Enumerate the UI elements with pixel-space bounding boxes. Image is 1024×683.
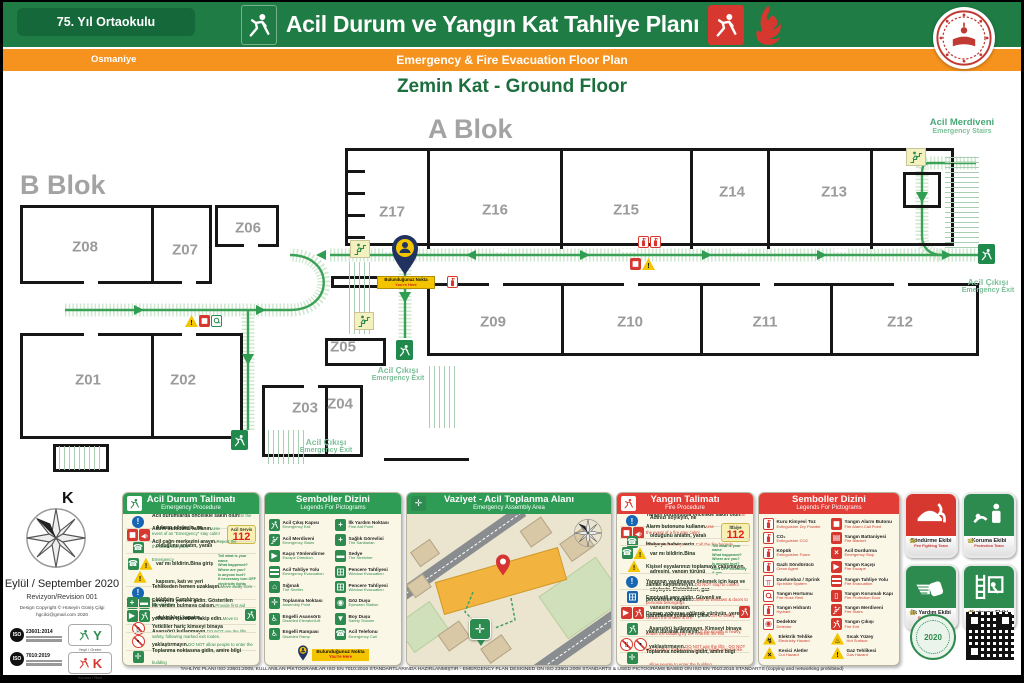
window-icon xyxy=(627,591,638,603)
legend-item: Yangın MerdiveniFire Stairs xyxy=(831,603,895,617)
sprinkler-icon: ╥ xyxy=(763,575,774,587)
wall xyxy=(151,208,154,281)
fire-exit-man-icon xyxy=(621,496,636,511)
team-badge-protection: ☎Koruma EkibiProtection Team xyxy=(962,492,1016,558)
you-are-here-label: Bulunduğunuz Nokta You're Here xyxy=(377,276,435,289)
legend-item: ╥Davlumbaz / SprinkSprinkler System xyxy=(763,574,827,588)
wall xyxy=(700,286,703,353)
stretcher-icon: ▬ xyxy=(335,550,346,562)
legend-text: Gaz TehlikesiGas Hazard xyxy=(847,648,877,658)
route-arrow-down-icon xyxy=(916,192,928,203)
route-arrow-right-icon xyxy=(702,250,712,260)
wall xyxy=(345,170,365,173)
legend-text: Pencere TahliyesiWindow Evacuation xyxy=(349,567,388,577)
iso-badge-2: ISO 7010:2019 xyxy=(10,652,62,666)
extinguisher-icon xyxy=(447,276,458,288)
stairs-hatch xyxy=(429,366,459,428)
fire-hose-icon xyxy=(763,590,774,602)
panel-legend-green: Semboller Dizini Legends For Pictograms … xyxy=(264,492,402,666)
route-arrow-down-icon xyxy=(242,354,254,365)
fire-hose-icon xyxy=(211,315,222,327)
legend-text: Yangın HortumuFire Hose Reel xyxy=(777,591,813,601)
legend-text: Toplanma NoktasıAssembly Point xyxy=(283,598,323,608)
subtitle-bar: Osmaniye Emergency & Fire Evacuation Flo… xyxy=(3,49,1021,71)
row-icons: ☎!! xyxy=(620,547,648,572)
protection-icon xyxy=(964,494,1014,536)
room-label-z13: Z13 xyxy=(821,184,847,201)
room-label-z11: Z11 xyxy=(752,314,777,331)
team-badge-helmet-flame: ☎Söndürme EkibiFire Fighting Team xyxy=(904,492,958,558)
legend-text: Yangın Alarm ButonuFire Alarm Call Point xyxy=(845,519,892,529)
info-icon: ! xyxy=(132,516,144,528)
ministry-logo xyxy=(933,7,995,69)
legend-text: Boy DuşuSafety Shower xyxy=(349,614,375,624)
fire-exit-icon xyxy=(633,607,644,619)
info-icon: ! xyxy=(626,576,638,588)
plan-date: Eylül / September 2020 xyxy=(4,578,120,590)
warning-icon: ! xyxy=(628,560,641,572)
legend-item: ▶Yangın KaçışıFire Escape xyxy=(831,560,895,574)
emergency-exit-icon xyxy=(396,340,413,360)
legend-item: Acil Çıkış KapısıEmergency Exit xyxy=(269,517,331,533)
room-label-z09: Z09 xyxy=(480,314,506,331)
green-key: Y xyxy=(68,624,112,646)
legend-text: İlk Yardım NoktasıFirst Aid Point xyxy=(349,520,389,530)
panel-legend-red: Semboller Dizini Legends For Pictograms … xyxy=(758,492,900,666)
procedure-row-10: ✛Toplanma noktasına gidin, amire bilgi v… xyxy=(620,652,750,663)
legend-text: SedyeThe Stretcher xyxy=(349,551,373,561)
sanitarian-icon: + xyxy=(335,534,346,546)
row-icons: ! xyxy=(620,576,644,588)
route-arrow-right-icon xyxy=(134,305,144,315)
room-label-z07: Z07 xyxy=(172,242,198,259)
legend-item: CO₂Extinguisher CO2 xyxy=(763,531,827,545)
legend-item: ✛Toplanma NoktasıAssembly Point xyxy=(269,595,331,611)
room-label-z12: Z12 xyxy=(887,314,913,331)
green-runner-icon xyxy=(78,629,90,641)
panel-fire-procedure: Yangın Talimatı Fire Procedure !Yangın d… xyxy=(616,492,754,666)
phone-icon: ☎ xyxy=(967,539,974,546)
shelter-icon: ⌂ xyxy=(269,581,280,593)
legend-item: ♿Engelli AsansörüDisabled Elevator/Lift xyxy=(269,611,331,627)
legend-item: Acil Tahliye YoluEmergency Evacuation xyxy=(269,564,331,580)
equipment-cluster: ! xyxy=(630,258,655,270)
fire-escape-icon: ▶ xyxy=(831,561,842,573)
exit-label: Acil Çıkışı Emergency Exit xyxy=(364,366,432,383)
hot-surface-icon: ♨ xyxy=(831,633,844,645)
legend-item: Acil MerdiveniEmergency Stairs xyxy=(269,533,331,549)
route-arrow-right-icon xyxy=(817,250,827,260)
legend-text: Sıcak YüzeyHot Surface xyxy=(847,634,874,644)
floor-title: Zemin Kat - Ground Floor xyxy=(0,76,1024,98)
emergency-phone-icon: ☎ xyxy=(133,542,144,554)
block-label-a: A Blok xyxy=(428,114,513,145)
stairs-hatch xyxy=(945,156,979,248)
exit-man-red-icon xyxy=(708,5,744,45)
wall xyxy=(345,192,365,195)
disabled-lift-icon: ♿ xyxy=(269,613,280,625)
iso-logo-icon: ISO xyxy=(10,652,24,666)
team-name: ☎Söndürme EkibiFire Fighting Team xyxy=(906,536,956,558)
fire-route-icon xyxy=(831,575,842,587)
panel-legend-green-header: Semboller Dizini Legends For Pictograms xyxy=(265,493,401,514)
title-row: Acil Durum ve Yangın Kat Tahliye Planı xyxy=(3,2,1021,47)
wall-a-top xyxy=(345,148,954,246)
equipment-cluster xyxy=(638,236,661,248)
iso-badge-1: ISO 23601:2014 xyxy=(10,628,62,642)
assembly-point-pin: ✛ xyxy=(469,618,491,640)
legend-item: ▤Yangın BattaniyesiFire Blanket xyxy=(831,531,895,545)
room-label-z05: Z05 xyxy=(330,339,356,356)
row-icons: ✛ xyxy=(620,652,644,664)
extinguisher-powder-icon xyxy=(763,518,774,530)
legend-text: Engelli RampasıDisabled Ramp xyxy=(283,629,319,639)
legend-item: Yangın Alarm ButonuFire Alarm Call Point xyxy=(831,517,895,531)
evacuation-route-icon xyxy=(269,566,280,578)
panel-emergency-header: Acil Durum Talimatı Emergency Procedure xyxy=(123,493,259,514)
legend-item: ▯Yangın Korumalı KapıFire Protection Doo… xyxy=(831,589,895,603)
room-label-z10: Z10 xyxy=(617,314,643,331)
extinguisher-foam-icon xyxy=(763,547,774,559)
row-text: Toplanma noktasına gidin, amire bilgi ve… xyxy=(646,640,750,666)
exit-door-icon xyxy=(269,519,280,531)
emergency-exit-icon xyxy=(231,430,248,450)
alarm-button-icon xyxy=(127,529,138,541)
evacuation-icon xyxy=(139,610,150,622)
detector-icon: ◉ xyxy=(763,618,774,630)
qr-code xyxy=(966,612,1014,660)
megaphone-icon xyxy=(139,529,150,541)
equipment-cluster xyxy=(447,276,458,288)
legend-text: Acil TelefonuEmergency Call xyxy=(349,629,378,639)
you-are-here-pin-icon xyxy=(297,645,309,666)
warning-icon: ! xyxy=(642,258,655,270)
copyright-line1: Design Copyright © Hüseyin Güniş Çilgi xyxy=(4,606,120,611)
revision: Revizyon/Revision 001 xyxy=(4,594,120,601)
route-arrow-left-icon xyxy=(466,250,476,260)
team-name: ☎Koruma EkibiProtection Team xyxy=(964,536,1014,558)
row-icons: ▶ xyxy=(620,607,644,619)
legend-text: Engelli AsansörüDisabled Elevator/Lift xyxy=(283,614,321,624)
legend-item: Pencere TahliyesiWindow Evacuation xyxy=(335,580,397,596)
panel-assembly-map: ✛ Vaziyet - Acil Toplanma Alanı Emergenc… xyxy=(406,492,612,666)
row-text: Toplanma noktasına gidin, amire bilgi ve… xyxy=(152,639,256,666)
window-evacuation-icon xyxy=(335,566,346,578)
room-label-z16: Z16 xyxy=(482,202,508,219)
emergency-phone-icon: ☎ xyxy=(335,628,346,640)
legend-text: Yangın ÇıkışıFire Exit xyxy=(845,619,874,629)
no-entry-icon: ▪ xyxy=(132,635,145,648)
emergency-phone-icon: ☎ xyxy=(128,558,139,570)
safety-shower-icon: ▼ xyxy=(335,613,346,625)
legend-item: ☎Acil TelefonuEmergency Call xyxy=(335,626,397,642)
window-evacuation-icon xyxy=(335,581,346,593)
room-label-z08: Z08 xyxy=(72,239,98,256)
wall xyxy=(870,151,873,249)
row-icons: ☎ xyxy=(126,542,150,554)
legend-item: ♿Engelli RampasıDisabled Ramp xyxy=(269,626,331,642)
legend-text: Acil DurdurmaEmergency Stop xyxy=(845,548,877,558)
cut-hazard-icon: × xyxy=(763,647,776,659)
ladder-rescue-icon xyxy=(964,566,1014,608)
header-bar: 75. Yıl Ortaokulu Acil Durum ve Yangın K… xyxy=(3,2,1021,47)
legend-item: ×Acil DurdurmaEmergency Stop xyxy=(831,546,895,560)
fire-alarm-icon xyxy=(831,518,842,530)
iso-logo-icon: ISO xyxy=(10,628,24,642)
wall xyxy=(345,214,365,217)
legend-text: Yangın BattaniyesiFire Blanket xyxy=(845,534,887,544)
row-icons xyxy=(620,591,644,603)
legend-text: Göz DuşuEyewash Station xyxy=(349,598,379,608)
phone-icon: ☎ xyxy=(909,539,916,546)
emergency-phone-icon: ☎ xyxy=(622,547,633,559)
wall-b-bottom xyxy=(20,333,243,439)
assembly-point-icon: ✛ xyxy=(133,651,144,663)
eyewash-icon: ◉ xyxy=(335,597,346,609)
legend-text: KöpükExtinguisher Foam xyxy=(777,548,810,558)
row-icons: ! xyxy=(620,515,644,527)
wall xyxy=(560,151,563,249)
room-label-z02: Z02 xyxy=(170,372,196,389)
extinguisher-icon xyxy=(650,236,661,248)
alarm-button-icon xyxy=(630,258,641,270)
room-label-z01: Z01 xyxy=(75,372,101,389)
evacuation-plan-page: 75. Yıl Ortaokulu Acil Durum ve Yangın K… xyxy=(0,0,1024,683)
wall xyxy=(767,151,770,249)
stairs-down-icon xyxy=(354,312,374,330)
assembly-point-icon: ✛ xyxy=(269,597,280,609)
legend-text: Yangın HidrantıHydrant xyxy=(777,605,811,615)
floorplan: A Blok B Blok Bulunduğunuz Nokta You're … xyxy=(4,100,1020,488)
row-icons: ▯▪ xyxy=(620,638,647,651)
seal-year: 2020 xyxy=(916,620,950,654)
block-label-b: B Blok xyxy=(20,170,106,201)
wall xyxy=(151,336,154,436)
legend-item: KöpükExtinguisher Foam xyxy=(763,546,827,560)
room-label-z04: Z04 xyxy=(327,396,353,413)
room-label-z15: Z15 xyxy=(613,202,639,219)
fire-exit-icon xyxy=(831,618,842,630)
compass-rose-icon xyxy=(24,506,88,570)
hydrant-icon xyxy=(763,604,774,616)
red-key-label: Kırmızı / Red xyxy=(68,675,112,680)
copyright-line2: hgcilci@gmail.com 2020 xyxy=(4,613,120,618)
warning-icon: ! xyxy=(634,547,647,559)
emergency-stop-icon: × xyxy=(831,547,842,559)
assembly-map: ✛ xyxy=(407,514,611,665)
page-subtitle: Emergency & Fire Evacuation Floor Plan xyxy=(3,53,1021,67)
wall xyxy=(561,286,564,353)
exit-label: Acil Çıkışı Emergency Exit xyxy=(292,438,360,455)
extinguisher-co2-icon xyxy=(763,532,774,544)
extinguisher-icon xyxy=(638,236,649,248)
legend-text: Davlumbaz / SprinkSprinkler System xyxy=(777,577,820,587)
legend-text: Acil Çıkış KapısıEmergency Exit xyxy=(283,520,319,530)
legend-item: +İlk Yardım NoktasıFirst Aid Point xyxy=(335,517,397,533)
legend-item: ⌂SığınakThe Shelter xyxy=(269,580,331,596)
first-aid-hand-icon xyxy=(906,566,956,608)
info-block: K Eylül / September 2020 Revizyon/Revisi… xyxy=(4,488,120,674)
approval-seal: 2020 xyxy=(910,614,956,660)
row-icons: ▶ xyxy=(126,610,150,622)
legend-item: Yangın ÇıkışıFire Exit xyxy=(831,617,895,631)
assembly-point-icon: ✛ xyxy=(627,652,638,664)
legend-item: ♨Sıcak YüzeyHot Surface xyxy=(831,631,895,645)
wall xyxy=(345,236,365,239)
legend-item: +Sağlık GörevlisiThe Sanitarian xyxy=(335,533,397,549)
warning-icon: ! xyxy=(185,315,198,327)
frame-bottom xyxy=(0,675,1024,683)
legend-item: ▶Kaçış YönlendirmeEscape Direction xyxy=(269,548,331,564)
legend-text: SığınakThe Shelter xyxy=(283,583,304,593)
flame-icon xyxy=(753,3,783,47)
legend-text: Elektrik TehlikeElectricity Hazard xyxy=(779,634,813,644)
emergency-stairs-label: Acil Merdiveni Emergency Stairs xyxy=(918,118,1006,136)
frame-left xyxy=(0,0,3,683)
electric-hazard-icon: ↯ xyxy=(763,633,776,645)
legend-text: Acil MerdiveniEmergency Stairs xyxy=(283,536,315,546)
row-icons: ▪ xyxy=(126,635,150,648)
route-arrow-right-icon xyxy=(256,305,266,315)
extinguisher-clean-agent-icon xyxy=(763,561,774,573)
room-label-z17: Z17 xyxy=(379,204,405,221)
footer-note: TAHLİYE PLANI ISO 23601:2009, KULLANILAN… xyxy=(12,667,1012,672)
wall xyxy=(690,151,693,249)
panel-fire-header: Yangın Talimatı Fire Procedure xyxy=(617,493,753,514)
compass-icon xyxy=(573,518,603,548)
fire-arrow-icon: ▶ xyxy=(621,607,632,619)
stairs-down-icon xyxy=(350,240,370,258)
exit-man-icon xyxy=(127,496,142,511)
legend-item: !Gaz TehlikesiGas Hazard xyxy=(831,646,895,660)
legend-text: Pencere TahliyesiWindow Evacuation xyxy=(349,583,388,593)
disabled-ramp-icon: ♿ xyxy=(269,628,280,640)
legend-text: Yangın KaçışıFire Escape xyxy=(845,562,875,572)
exit-label: Acil Çıkışı Emergency Exit xyxy=(956,278,1020,295)
first-aid-icon: + xyxy=(335,519,346,531)
legend-item: ▬SedyeThe Stretcher xyxy=(335,548,397,564)
row-icons xyxy=(126,529,150,541)
room-label-z14: Z14 xyxy=(719,184,745,201)
warning-icon: ! xyxy=(134,571,147,583)
legend-item: ↯Elektrik TehlikeElectricity Hazard xyxy=(763,631,827,645)
legend-text: Kesici AletlerCut Hazard xyxy=(779,648,809,658)
legend-item: ◉DedektörDetector xyxy=(763,617,827,631)
crawl-icon xyxy=(627,623,638,635)
gas-hazard-icon: ! xyxy=(831,647,844,659)
escape-direction-icon: ▶ xyxy=(269,550,280,562)
escape-arrow-icon: ▶ xyxy=(127,610,138,622)
wall xyxy=(427,151,430,249)
exit-man-green-icon xyxy=(241,5,277,45)
legend-text: CO₂Extinguisher CO2 xyxy=(777,534,808,544)
phone-icon: ☎ xyxy=(909,611,916,618)
school-pin-icon xyxy=(495,554,511,576)
emergency-exit-icon xyxy=(978,244,995,264)
equipment-cluster: ! xyxy=(185,315,222,327)
emergency-stairs-icon xyxy=(269,534,280,546)
procedure-row-10: ✛Toplanma noktasına gidin, amire bilgi v… xyxy=(126,650,256,663)
row-icons: ! xyxy=(126,516,150,528)
wall xyxy=(384,458,469,461)
row-icons: ✛ xyxy=(126,651,150,663)
legend-text: Yangın MerdiveniFire Stairs xyxy=(845,605,884,615)
route-arrow-right-icon xyxy=(942,250,952,260)
legend-text: Sağlık GörevlisiThe Sanitarian xyxy=(349,536,384,546)
route-arrow-down-icon xyxy=(399,292,411,303)
room-label-z03: Z03 xyxy=(292,400,318,417)
legend-item: Gazlı SöndürücüClean Agent xyxy=(763,560,827,574)
legend-item: Yangın HidrantıHydrant xyxy=(763,603,827,617)
legend-text: Yangın Korumalı KapıFire Protection Door xyxy=(845,591,893,601)
route-arrow-left-icon xyxy=(316,250,326,260)
row-icons xyxy=(620,623,644,635)
alarm-button-icon xyxy=(199,315,210,327)
legend-text: Acil Tahliye YoluEmergency Evacuation xyxy=(283,567,324,577)
fire-blanket-icon: ▤ xyxy=(831,532,842,544)
legend-item: ◉Göz DuşuEyewash Station xyxy=(335,595,397,611)
legend-text: Kuru Kimyevi TozExtinguisher Dry Powder xyxy=(777,519,821,529)
no-elevator-icon: ▯ xyxy=(620,638,633,651)
route-arrow-right-icon xyxy=(580,250,590,260)
fire-stairs-icon xyxy=(831,604,842,616)
you-are-here-legend: Bulunduğunuz Nokta You're Here xyxy=(265,645,401,665)
legend-text: Gazlı SöndürücüClean Agent xyxy=(777,562,814,572)
stairs-hatch xyxy=(59,446,103,470)
legend-text: DedektörDetector xyxy=(777,619,797,629)
wall xyxy=(830,286,833,353)
fire-door-icon: ▯ xyxy=(831,590,842,602)
panel-emergency-procedure: Acil Durum Talimatı Emergency Procedure … xyxy=(122,492,260,666)
panel-legend-red-header: Semboller Dizini Legends For Pictograms xyxy=(759,493,899,514)
legend-text: Kaçış YönlendirmeEscape Direction xyxy=(283,551,325,561)
legend-item: ×Kesici AletlerCut Hazard xyxy=(763,646,827,660)
stairs-down-icon xyxy=(906,148,926,166)
helmet-flame-icon xyxy=(906,494,956,536)
info-icon: ! xyxy=(626,515,638,527)
legend-item: ▼Boy DuşuSafety Shower xyxy=(335,611,397,627)
assembly-point-icon: ✛ xyxy=(411,496,426,511)
legend-item: Kuru Kimyevi TozExtinguisher Dry Powder xyxy=(763,517,827,531)
warning-icon: ! xyxy=(140,558,153,570)
page-title: Acil Durum ve Yangın Kat Tahliye Planı xyxy=(286,11,699,38)
legend-item: Yangın Tahliye YoluFire Evacuation xyxy=(831,574,895,588)
room-label-z06: Z06 xyxy=(235,220,261,237)
legend-text: Yangın Tahliye YoluFire Evacuation xyxy=(845,577,889,587)
legend-item: Pencere TahliyesiWindow Evacuation xyxy=(335,564,397,580)
panel-assembly-header: ✛ Vaziyet - Acil Toplanma Alanı Emergenc… xyxy=(407,493,611,514)
row-icons: ☎!! xyxy=(126,558,154,583)
legend-item: Yangın HortumuFire Hose Reel xyxy=(763,589,827,603)
you-are-here-pin xyxy=(390,234,420,276)
